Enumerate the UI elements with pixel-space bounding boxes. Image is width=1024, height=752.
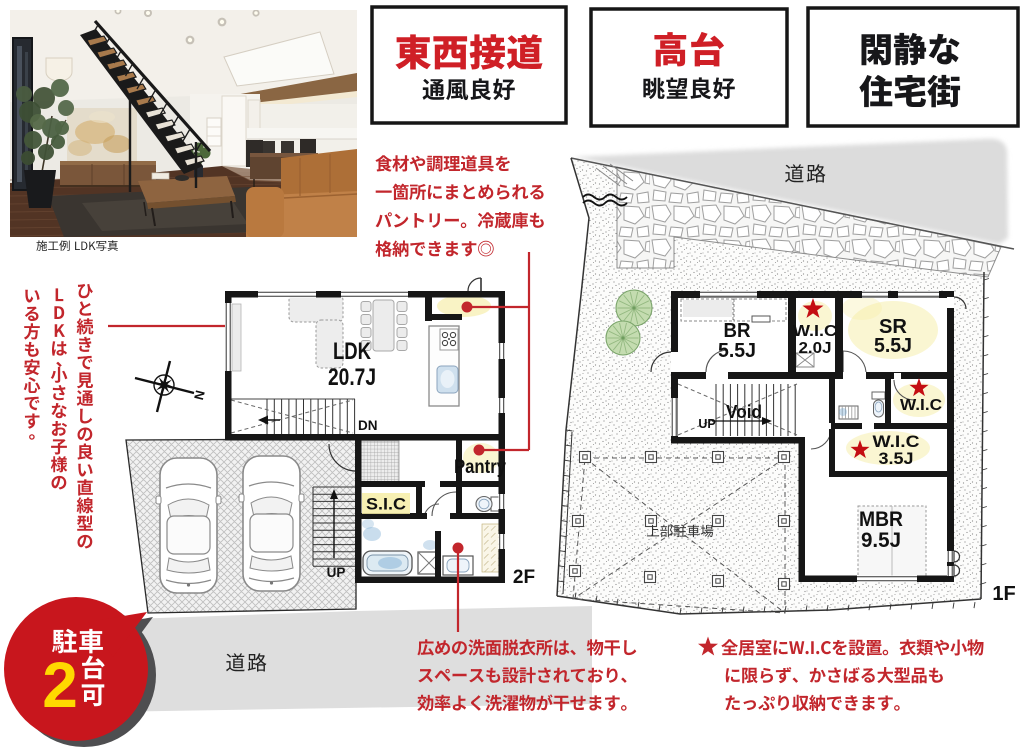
svg-text:UP: UP xyxy=(698,417,715,431)
svg-text:LDK: LDK xyxy=(333,338,372,365)
svg-text:5.5J: 5.5J xyxy=(718,340,756,362)
svg-text:20.7J: 20.7J xyxy=(328,364,376,391)
svg-text:2: 2 xyxy=(42,649,76,721)
svg-text:BR: BR xyxy=(724,320,752,342)
svg-text:S.I.C: S.I.C xyxy=(366,495,406,514)
svg-text:Pantry: Pantry xyxy=(454,457,506,478)
svg-text:2.0J: 2.0J xyxy=(799,340,832,357)
svg-text:1F: 1F xyxy=(992,583,1015,605)
svg-text:2F: 2F xyxy=(513,567,535,588)
svg-text:9.5J: 9.5J xyxy=(861,529,901,552)
svg-text:UP: UP xyxy=(327,565,346,580)
svg-text:3.5J: 3.5J xyxy=(879,449,914,468)
svg-text:Void: Void xyxy=(726,402,762,422)
svg-text:W.I.C: W.I.C xyxy=(793,323,838,340)
svg-text:DN: DN xyxy=(358,418,378,433)
svg-text:MBR: MBR xyxy=(859,508,903,531)
svg-text:N: N xyxy=(191,389,208,402)
svg-text:W.I.C: W.I.C xyxy=(900,397,942,414)
svg-text:5.5J: 5.5J xyxy=(874,335,912,357)
